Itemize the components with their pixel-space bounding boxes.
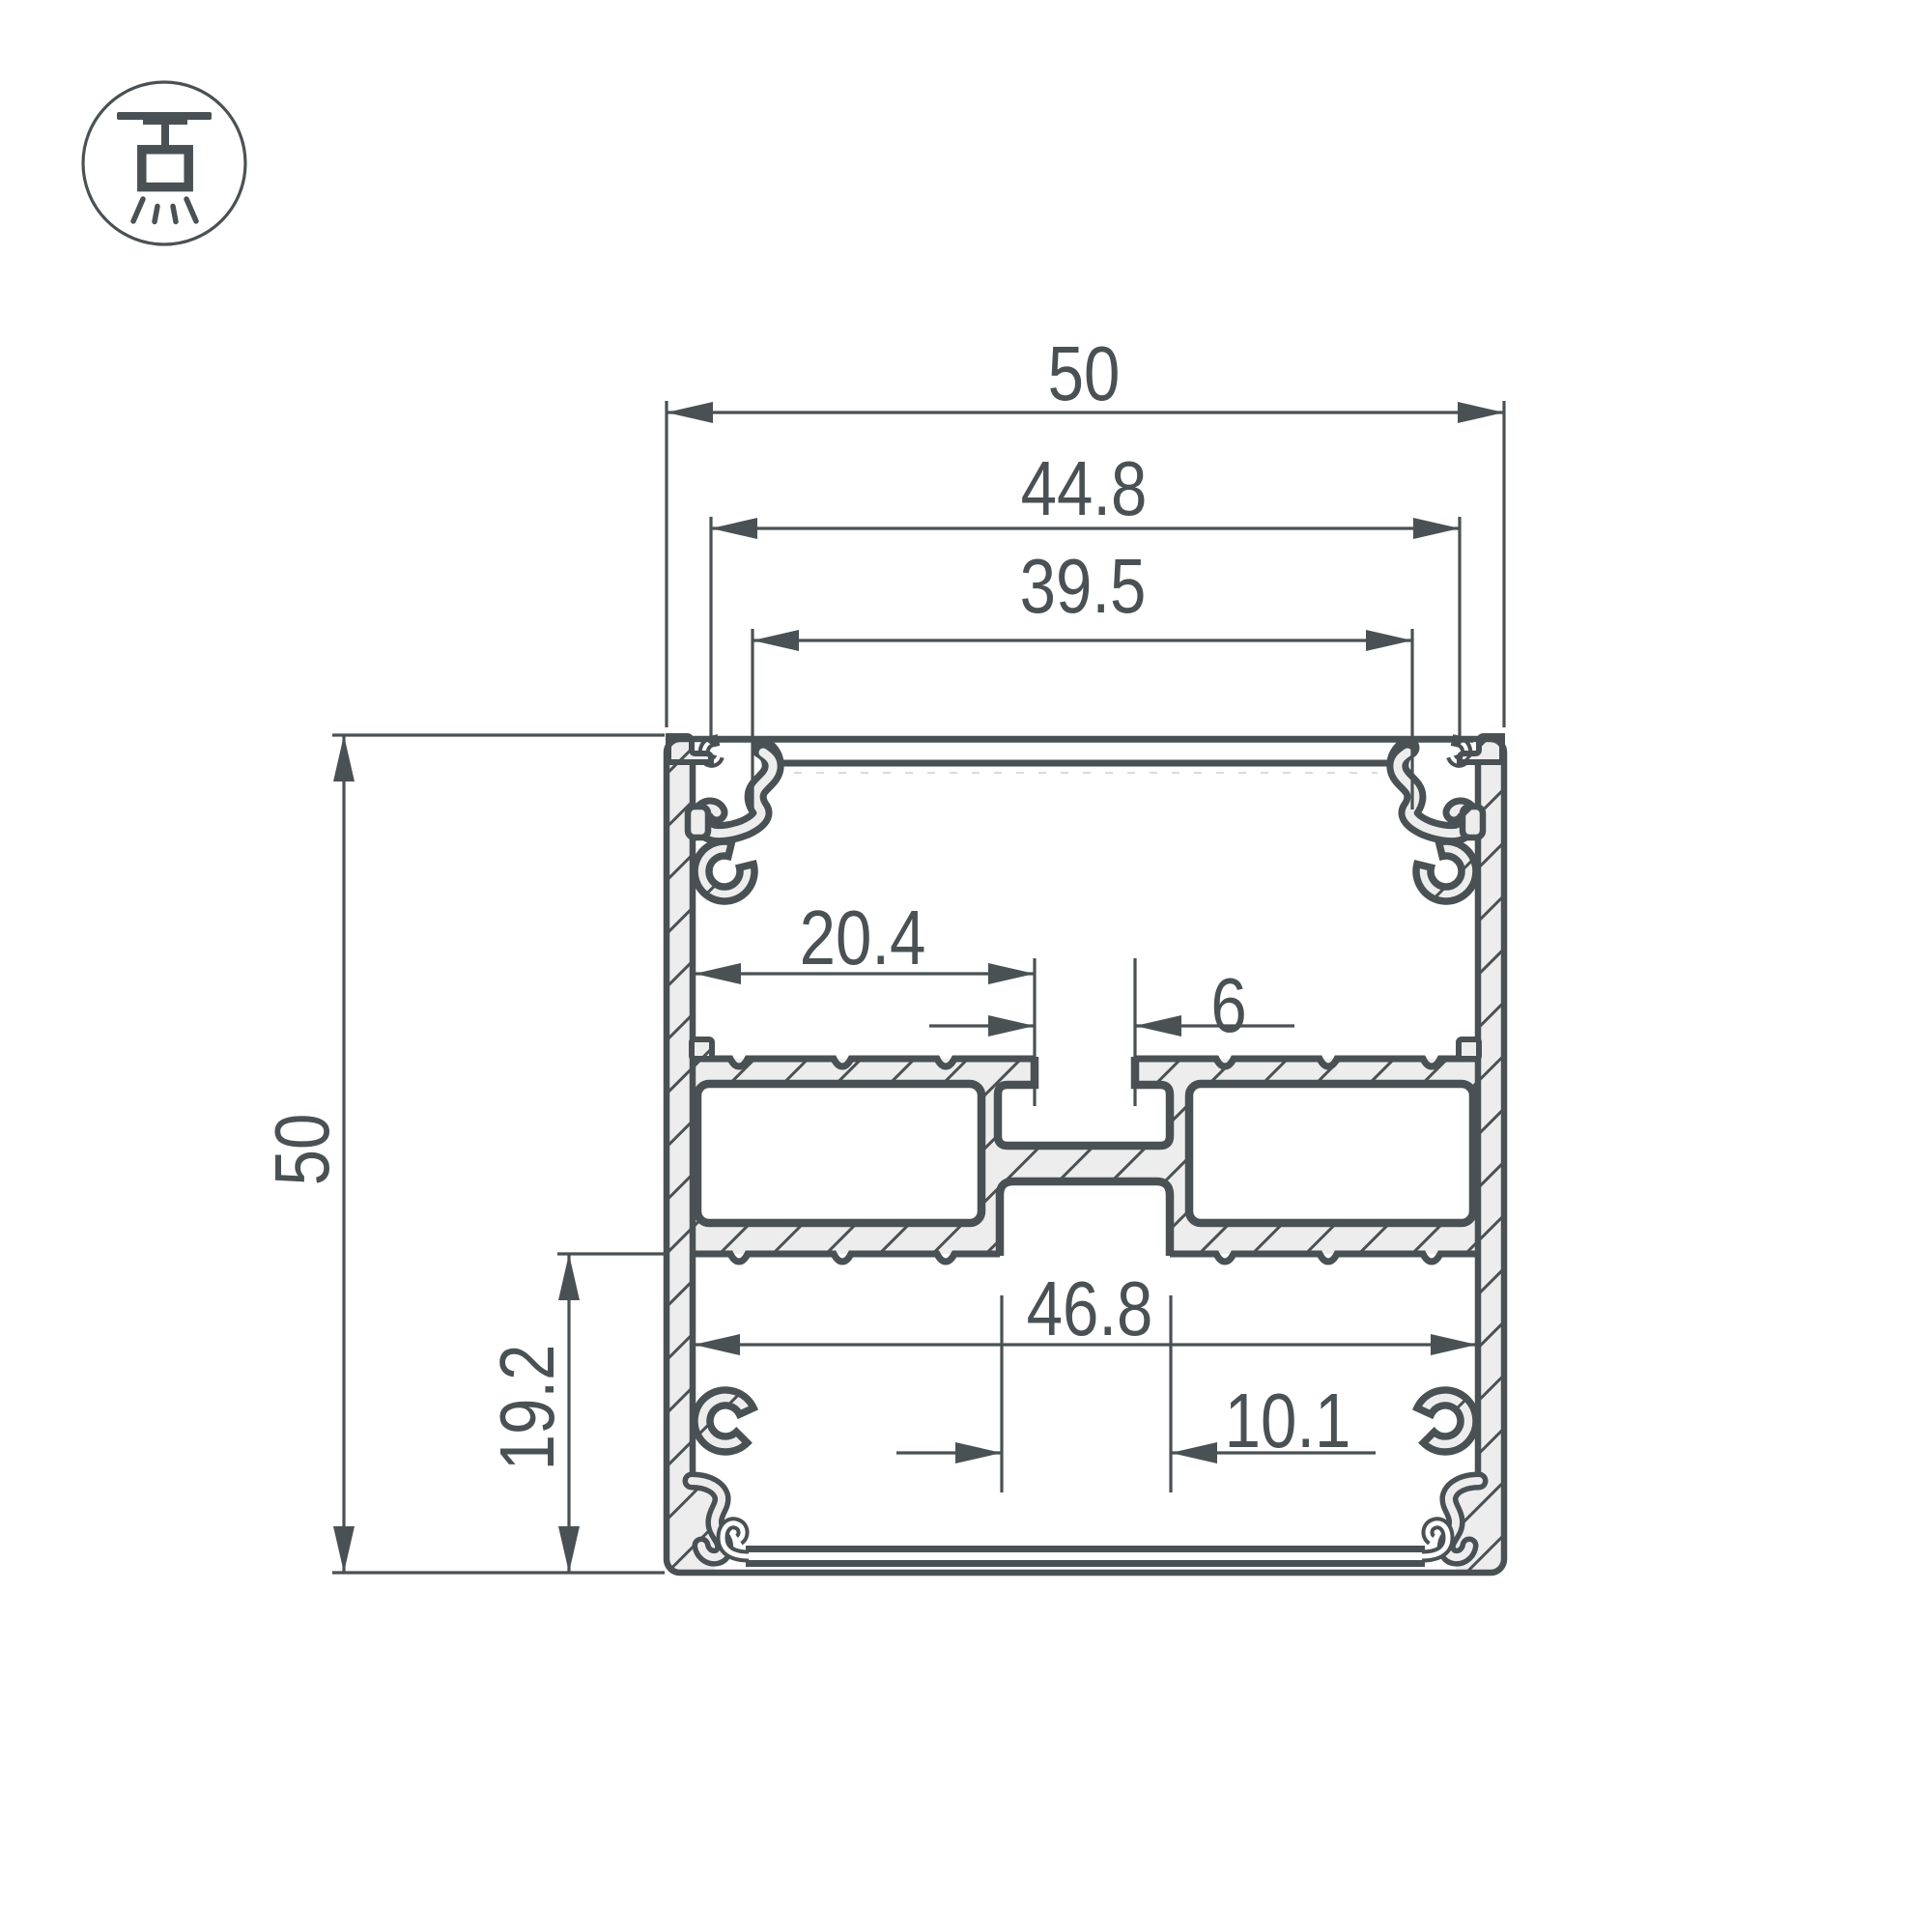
svg-text:44.8: 44.8	[1021, 444, 1148, 531]
svg-text:19.2: 19.2	[483, 1345, 570, 1471]
svg-text:20.4: 20.4	[800, 894, 926, 980]
svg-text:50: 50	[1048, 329, 1121, 416]
svg-text:50: 50	[258, 1114, 345, 1186]
svg-text:46.8: 46.8	[1027, 1264, 1153, 1351]
svg-text:10.1: 10.1	[1225, 1377, 1351, 1463]
svg-text:39.5: 39.5	[1020, 542, 1147, 629]
svg-text:6: 6	[1210, 961, 1246, 1048]
